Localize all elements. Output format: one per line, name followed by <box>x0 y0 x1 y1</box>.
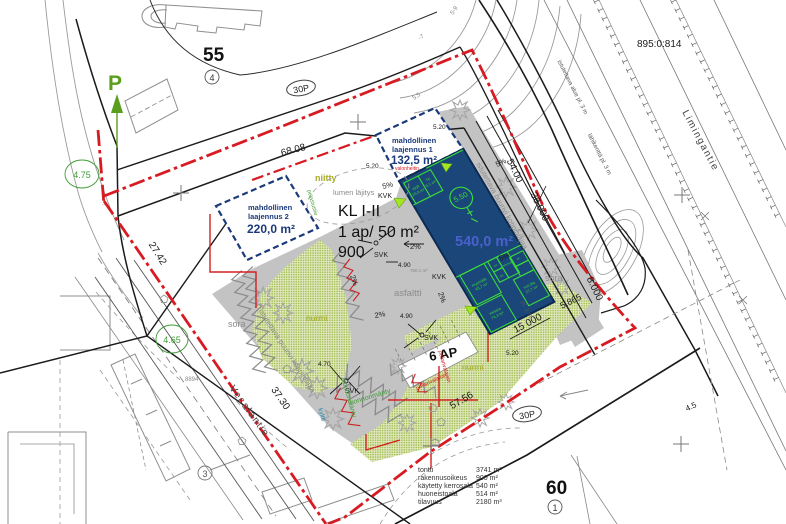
svg-text:3: 3 <box>202 469 207 479</box>
svg-text:nurmi: nurmi <box>462 362 483 372</box>
svg-text:2180 m³: 2180 m³ <box>476 499 502 506</box>
svg-text:valonheitin: valonheitin <box>395 166 419 172</box>
svg-text:4.90: 4.90 <box>400 313 413 320</box>
svg-text:8894: 8894 <box>185 377 199 383</box>
svg-text:1: 1 <box>552 503 557 513</box>
svg-text:540,0 m²: 540,0 m² <box>455 234 513 250</box>
svg-text:895:0:814: 895:0:814 <box>637 39 682 50</box>
svg-text:nurmi: nurmi <box>306 313 327 323</box>
svg-text:KVK: KVK <box>432 274 446 281</box>
svg-text:KL I-II: KL I-II <box>338 203 380 220</box>
svg-text:4.70: 4.70 <box>318 361 331 368</box>
svg-text:SVK: SVK <box>424 335 438 342</box>
svg-text:760.1 m²: 760.1 m² <box>410 268 428 273</box>
svg-text:laajennus 2: laajennus 2 <box>248 212 289 221</box>
svg-text:SVK: SVK <box>374 252 388 259</box>
svg-text:2%: 2% <box>374 309 387 320</box>
svg-text:514 m²: 514 m² <box>476 491 498 498</box>
svg-text:P: P <box>108 72 122 95</box>
svg-text:4: 4 <box>209 73 214 83</box>
svg-text:huoneistoala: huoneistoala <box>418 491 458 498</box>
svg-text:käytetty kerrosala: käytetty kerrosala <box>418 483 473 490</box>
svg-text:tilavuus: tilavuus <box>418 499 442 506</box>
svg-text:2%: 2% <box>410 242 421 251</box>
svg-text:4.75: 4.75 <box>73 170 91 180</box>
svg-text:mahdollinen: mahdollinen <box>248 203 293 212</box>
svg-text:tontti: tontti <box>418 467 434 474</box>
svg-text:mahdollinen: mahdollinen <box>392 136 437 145</box>
svg-text:3741 m²: 3741 m² <box>476 467 502 474</box>
svg-text:5.20: 5.20 <box>506 350 519 357</box>
svg-text:540 m²: 540 m² <box>476 483 498 490</box>
svg-text:4.65: 4.65 <box>163 335 181 345</box>
svg-text:KVK: KVK <box>378 193 392 200</box>
svg-text:220,0 m²: 220,0 m² <box>247 222 295 236</box>
svg-text:900 m²: 900 m² <box>476 475 498 482</box>
svg-text:sora: sora <box>545 273 563 283</box>
svg-text:5.20: 5.20 <box>433 124 446 131</box>
svg-text:rakennusoikeus: rakennusoikeus <box>418 475 468 482</box>
svg-text:5.20: 5.20 <box>366 163 379 170</box>
svg-text:55: 55 <box>203 45 225 66</box>
svg-text:900: 900 <box>338 244 365 261</box>
svg-text:laajennus 1: laajennus 1 <box>392 145 433 154</box>
svg-text:niitty: niitty <box>315 173 337 183</box>
svg-text:1 ap/ 50 m²: 1 ap/ 50 m² <box>338 224 420 241</box>
svg-text:sora: sora <box>228 319 246 329</box>
svg-text:asfaltti: asfaltti <box>394 288 421 299</box>
svg-text:60: 60 <box>546 478 567 499</box>
svg-text:lumen läjitys: lumen läjitys <box>333 188 375 197</box>
